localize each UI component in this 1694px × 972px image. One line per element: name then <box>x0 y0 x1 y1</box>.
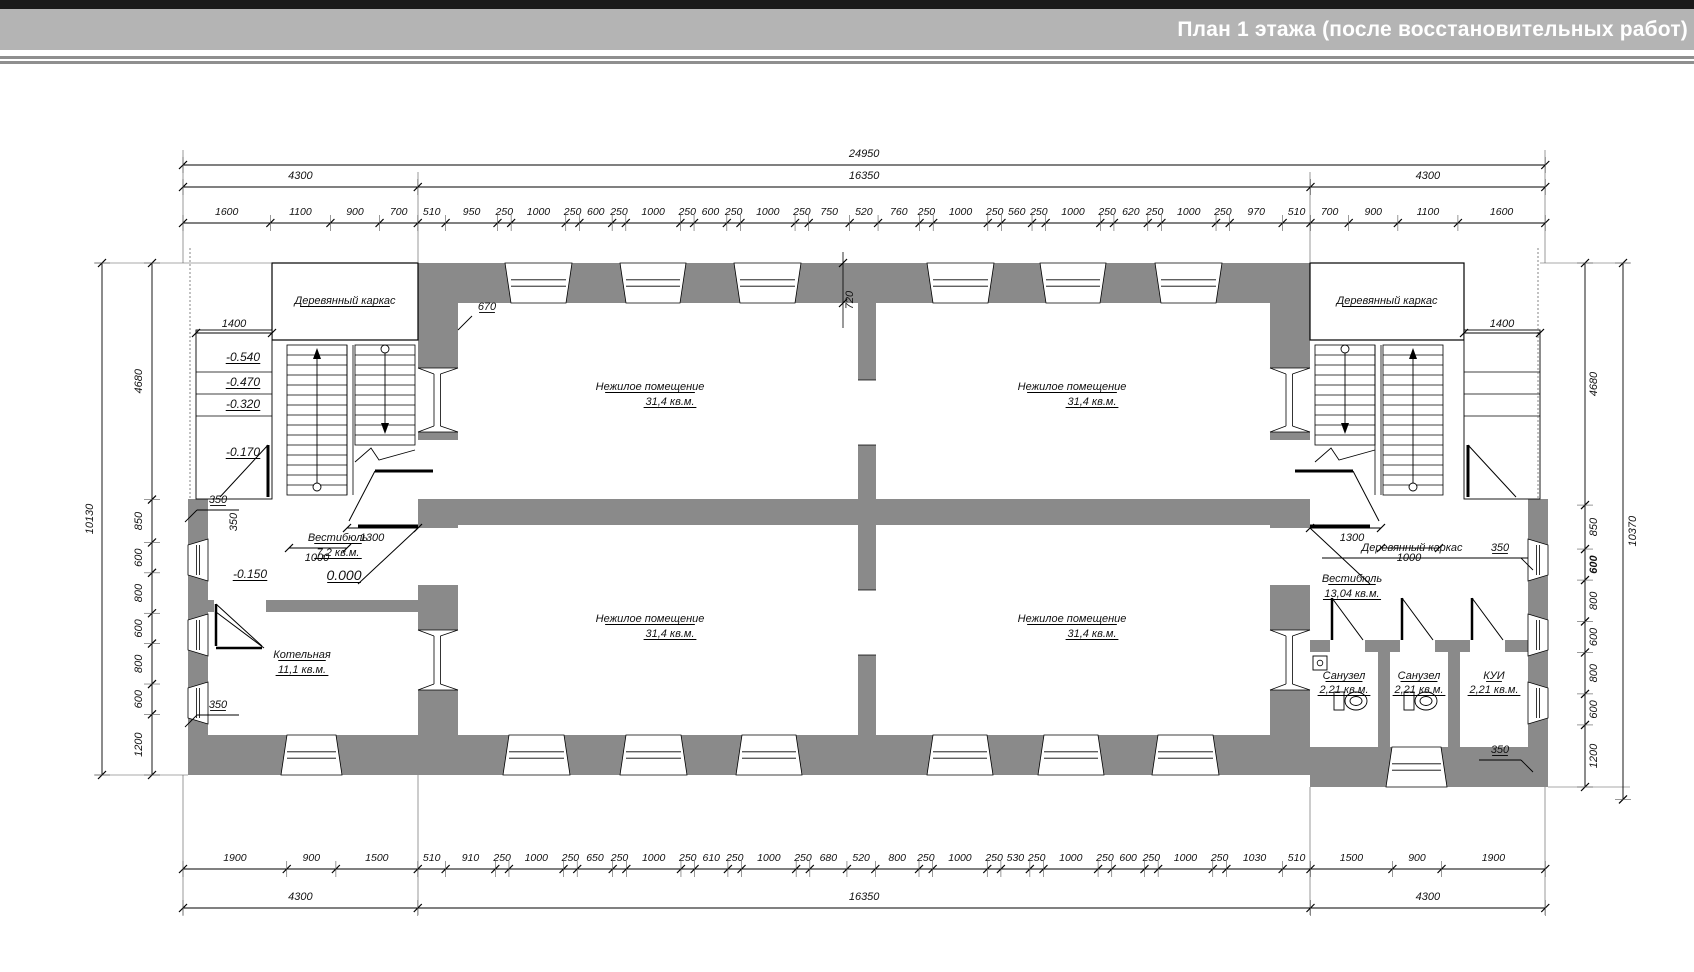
dim-top-detail: 250 <box>985 206 1004 218</box>
dim-annotation: 350 <box>228 512 240 531</box>
dim-top-detail: 250 <box>495 206 514 218</box>
dim-bottom-detail: 250 <box>678 852 697 864</box>
dim-top-detail: 250 <box>1029 206 1048 218</box>
room-label: Санузел <box>1398 670 1441 682</box>
dim-top-detail: 520 <box>855 206 873 218</box>
dim-bottom-detail: 1000 <box>757 852 781 864</box>
dim-top-detail: 250 <box>1145 206 1164 218</box>
dim-bottom-detail: 1000 <box>525 852 549 864</box>
dim-bottom-detail: 680 <box>820 852 838 864</box>
dim-top-detail: 1600 <box>215 206 239 218</box>
dim-right-detail: 600 <box>1588 627 1600 646</box>
dim-top-detail: 250 <box>1097 206 1116 218</box>
dim-top-detail: 510 <box>423 206 441 218</box>
dim-bottom-detail: 250 <box>1027 852 1046 864</box>
dim-bottom-detail: 510 <box>1288 852 1306 864</box>
dim-bottom-detail: 800 <box>888 852 906 864</box>
dim-left-detail: 600 <box>133 618 145 637</box>
wood-frame-label: Деревянный каркас <box>1359 542 1463 554</box>
room-label: Вестибюль <box>308 532 369 544</box>
dim-top-detail: 1000 <box>756 206 780 218</box>
dim-bottom-detail: 1000 <box>948 852 972 864</box>
dim-bottom-detail: 250 <box>1095 852 1114 864</box>
dim-top-detail: 560 <box>1008 206 1026 218</box>
dim-bottom-detail: 250 <box>725 852 744 864</box>
dim-bottom-detail: 250 <box>561 852 580 864</box>
dim-bottom-detail: 250 <box>610 852 629 864</box>
room-label: Котельная <box>273 649 331 661</box>
room-area-label: 7,2 кв.м. <box>317 547 360 559</box>
dim-bottom-detail: 910 <box>462 852 480 864</box>
dim-bottom-detail: 1030 <box>1243 852 1267 864</box>
dim-top-detail: 900 <box>1365 206 1383 218</box>
dim-top-detail: 250 <box>609 206 628 218</box>
room-label: КУИ <box>1483 670 1505 682</box>
dim-annotation: 350 <box>209 699 228 711</box>
dim-right-detail: 800 <box>1588 591 1600 610</box>
dim-bottom-detail: 1000 <box>642 852 666 864</box>
dim-annotation: 350 <box>1491 542 1510 554</box>
dim-bottom-detail: 250 <box>1142 852 1161 864</box>
wood-frame-label: Деревянный каркас <box>1334 295 1438 307</box>
dim-annotation: 720 <box>844 290 856 309</box>
dim-top-detail: 1000 <box>1061 206 1085 218</box>
dim-right-detail: 1200 <box>1588 743 1600 768</box>
dim-right-detail: 600 <box>1588 555 1600 574</box>
dim-right-detail: 4680 <box>1588 371 1600 396</box>
dim-bottom-detail: 1000 <box>1174 852 1198 864</box>
dim-top-detail: 900 <box>346 206 364 218</box>
dim-bottom-detail: 900 <box>303 852 321 864</box>
dim-top-detail: 1000 <box>527 206 551 218</box>
dim-annotation: 350 <box>1491 744 1510 756</box>
room-label: Санузел <box>1323 670 1366 682</box>
room-label: Вестибюль <box>1322 573 1383 585</box>
dim-bottom-detail: 900 <box>1408 852 1426 864</box>
dim-bottom-detail: 250 <box>916 852 935 864</box>
dim-bottom-detail: 530 <box>1007 852 1025 864</box>
dim-bottom-detail: 600 <box>1119 852 1137 864</box>
room-area-label: 11,1 кв.м. <box>278 664 326 676</box>
room-area-label: 31,4 кв.м. <box>1067 396 1116 408</box>
dim-annotation: 1400 <box>1490 318 1515 330</box>
dim-top-detail: 510 <box>1288 206 1306 218</box>
room-label: Нежилое помещение <box>596 381 705 393</box>
dim-bottom-detail: 650 <box>586 852 604 864</box>
dim-top-detail: 250 <box>1213 206 1232 218</box>
dim-top-detail: 760 <box>890 206 908 218</box>
dim-top-detail: 1000 <box>641 206 665 218</box>
dim-bottom-detail: 250 <box>984 852 1003 864</box>
dim-bottom-detail: 250 <box>793 852 812 864</box>
dim-top-detail: 250 <box>677 206 696 218</box>
dim-top-axes: 4300 <box>288 170 313 182</box>
dim-bottom-detail: 1000 <box>1059 852 1083 864</box>
elevation-label: -0.150 <box>233 567 267 581</box>
dim-right-detail: 800 <box>1588 663 1600 682</box>
dim-top-detail: 1100 <box>289 206 312 218</box>
dim-left-detail: 800 <box>133 583 145 602</box>
dim-top-detail: 1000 <box>1177 206 1201 218</box>
dim-bottom-axes: 16350 <box>849 891 880 903</box>
dim-left-detail: 850 <box>133 511 145 530</box>
dim-annotation: 1400 <box>222 318 247 330</box>
dim-right-detail: 850 <box>1588 517 1600 536</box>
dim-top-detail: 1100 <box>1417 206 1440 218</box>
dim-left-detail: 600 <box>133 689 145 708</box>
dim-top-detail: 250 <box>724 206 743 218</box>
dim-top-total: 24950 <box>848 148 880 160</box>
elevation-label: -0.470 <box>226 375 260 389</box>
room-area-label: 2,21 кв.м. <box>1318 684 1368 696</box>
dim-top-detail: 950 <box>463 206 481 218</box>
dim-left-total: 10130 <box>84 503 96 534</box>
room-area-label: 2,21 кв.м. <box>1393 684 1443 696</box>
elevation-label: -0.320 <box>226 397 260 411</box>
room-label: Нежилое помещение <box>596 613 705 625</box>
dim-top-detail: 700 <box>1321 206 1339 218</box>
dim-top-detail: 750 <box>820 206 838 218</box>
room-area-label: 2,21 кв.м. <box>1468 684 1518 696</box>
dim-bottom-detail: 520 <box>852 852 870 864</box>
dim-right-detail: 600 <box>1588 699 1600 718</box>
dim-top-axes: 16350 <box>849 170 880 182</box>
dim-top-detail: 700 <box>390 206 408 218</box>
dim-bottom-axes: 4300 <box>288 891 313 903</box>
floor-plan-drawing: 2495043001635043001600110090070051095025… <box>0 0 1694 972</box>
room-area-label: 31,4 кв.м. <box>645 396 694 408</box>
dim-left-detail: 4680 <box>133 368 145 393</box>
dim-bottom-detail: 1500 <box>365 852 389 864</box>
room-area-label: 31,4 кв.м. <box>1067 628 1116 640</box>
dim-top-detail: 1600 <box>1490 206 1514 218</box>
elevation-label: -0.540 <box>226 350 260 364</box>
dim-top-detail: 970 <box>1247 206 1265 218</box>
dim-top-detail: 250 <box>792 206 811 218</box>
floor-plan-page: План 1 этажа (после восстановительных ра… <box>0 0 1694 972</box>
room-area-label: 31,4 кв.м. <box>645 628 694 640</box>
room-label: Нежилое помещение <box>1018 381 1127 393</box>
dim-top-detail: 600 <box>587 206 605 218</box>
room-label: Нежилое помещение <box>1018 613 1127 625</box>
elevation-label: -0.170 <box>226 445 260 459</box>
dim-right-total: 10370 <box>1627 515 1639 546</box>
dim-bottom-detail: 1500 <box>1340 852 1364 864</box>
dim-bottom-detail: 1900 <box>1482 852 1506 864</box>
dim-bottom-axes: 4300 <box>1416 891 1441 903</box>
dim-top-detail: 600 <box>702 206 720 218</box>
dim-bottom-detail: 250 <box>492 852 511 864</box>
dim-bottom-detail: 250 <box>1210 852 1229 864</box>
fixtures-layer <box>1313 656 1437 710</box>
dim-left-detail: 1200 <box>133 732 145 757</box>
dim-bottom-detail: 510 <box>423 852 441 864</box>
dim-top-detail: 620 <box>1122 206 1140 218</box>
dim-annotation: 350 <box>209 494 228 506</box>
dim-left-detail: 600 <box>133 548 145 567</box>
dim-annotation: 670 <box>478 301 497 313</box>
dim-top-detail: 250 <box>917 206 936 218</box>
room-area-label: 13,04 кв.м. <box>1324 588 1379 600</box>
dim-left-detail: 800 <box>133 654 145 673</box>
dim-bottom-detail: 1900 <box>223 852 247 864</box>
dim-top-detail: 250 <box>563 206 582 218</box>
elevation-label: 0.000 <box>326 567 361 583</box>
dim-top-detail: 1000 <box>949 206 973 218</box>
dim-bottom-detail: 610 <box>702 852 720 864</box>
dim-top-axes: 4300 <box>1416 170 1441 182</box>
wood-frame-label: Деревянный каркас <box>292 295 396 307</box>
